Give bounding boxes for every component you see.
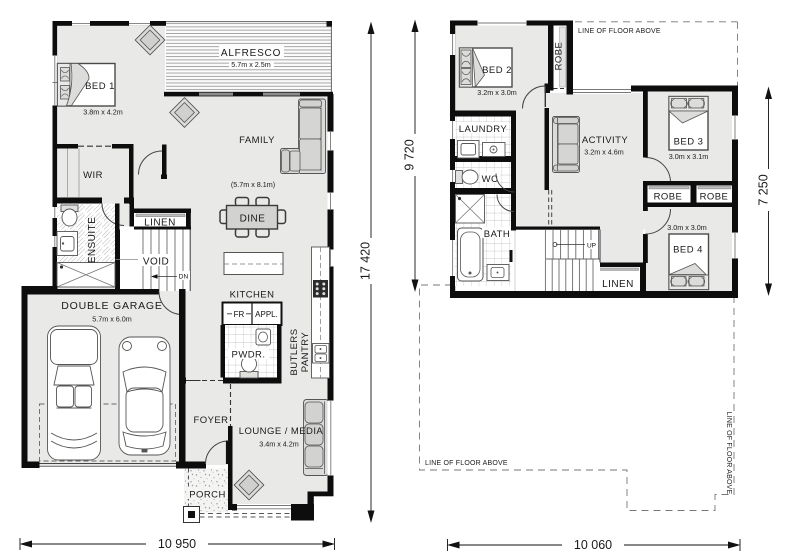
- svg-text:WIR: WIR: [83, 170, 103, 181]
- svg-text:10 060: 10 060: [574, 538, 612, 552]
- svg-text:BED 2: BED 2: [482, 65, 512, 76]
- svg-text:LAUNDRY: LAUNDRY: [459, 124, 508, 135]
- svg-text:ROBE: ROBE: [554, 42, 565, 71]
- svg-text:PORCH: PORCH: [189, 490, 226, 501]
- svg-text:17 420: 17 420: [359, 242, 373, 280]
- svg-text:5.7m x 2.5m: 5.7m x 2.5m: [231, 60, 271, 69]
- svg-text:10 950: 10 950: [158, 537, 196, 551]
- svg-text:BED 1: BED 1: [85, 81, 115, 92]
- svg-text:BUTLERS: BUTLERS: [289, 329, 300, 376]
- svg-text:FR: FR: [234, 310, 245, 319]
- svg-text:LOUNGE / MEDIA: LOUNGE / MEDIA: [239, 426, 324, 437]
- svg-text:3.0m x 3.1m: 3.0m x 3.1m: [669, 152, 709, 161]
- svg-text:3.2m x 3.0m: 3.2m x 3.0m: [477, 88, 517, 97]
- svg-text:UP: UP: [587, 243, 596, 250]
- svg-text:7 250: 7 250: [757, 174, 771, 205]
- svg-text:PWDR.: PWDR.: [232, 350, 266, 361]
- svg-text:PANTRY: PANTRY: [300, 332, 311, 373]
- svg-text:3.8m x 4.2m: 3.8m x 4.2m: [83, 108, 123, 117]
- svg-text:LINE OF FLOOR ABOVE: LINE OF FLOOR ABOVE: [425, 460, 508, 467]
- svg-text:APPL.: APPL.: [255, 310, 278, 319]
- svg-text:ENSUITE: ENSUITE: [87, 217, 98, 264]
- svg-text:FOYER: FOYER: [194, 415, 229, 426]
- svg-text:3.0m x 3.0m: 3.0m x 3.0m: [667, 223, 707, 232]
- svg-text:LINE OF FLOOR ABOVE: LINE OF FLOOR ABOVE: [725, 412, 732, 495]
- svg-text:FAMILY: FAMILY: [239, 135, 275, 146]
- svg-text:BATH: BATH: [484, 229, 510, 240]
- svg-text:VOID: VOID: [143, 257, 169, 268]
- svg-text:LINEN: LINEN: [602, 279, 634, 290]
- svg-text:KITCHEN: KITCHEN: [230, 290, 275, 301]
- svg-text:BED 3: BED 3: [674, 137, 704, 148]
- svg-text:BED 4: BED 4: [673, 245, 703, 256]
- svg-text:ACTIVITY: ACTIVITY: [582, 135, 629, 146]
- svg-text:3.4m x 4.2m: 3.4m x 4.2m: [259, 440, 299, 449]
- svg-text:3.2m x 4.6m: 3.2m x 4.6m: [584, 148, 624, 157]
- svg-text:ROBE: ROBE: [654, 192, 683, 203]
- svg-text:ROBE: ROBE: [700, 192, 729, 203]
- svg-text:ALFRESCO: ALFRESCO: [221, 48, 281, 59]
- svg-text:9 720: 9 720: [403, 139, 417, 170]
- svg-text:DN: DN: [179, 274, 189, 281]
- svg-text:5.7m x 6.0m: 5.7m x 6.0m: [92, 315, 132, 324]
- svg-text:LINE OF FLOOR ABOVE: LINE OF FLOOR ABOVE: [578, 28, 661, 35]
- svg-text:DOUBLE GARAGE: DOUBLE GARAGE: [61, 300, 162, 312]
- svg-text:DINE: DINE: [240, 214, 266, 225]
- svg-text:(5.7m x 8.1m): (5.7m x 8.1m): [231, 180, 275, 189]
